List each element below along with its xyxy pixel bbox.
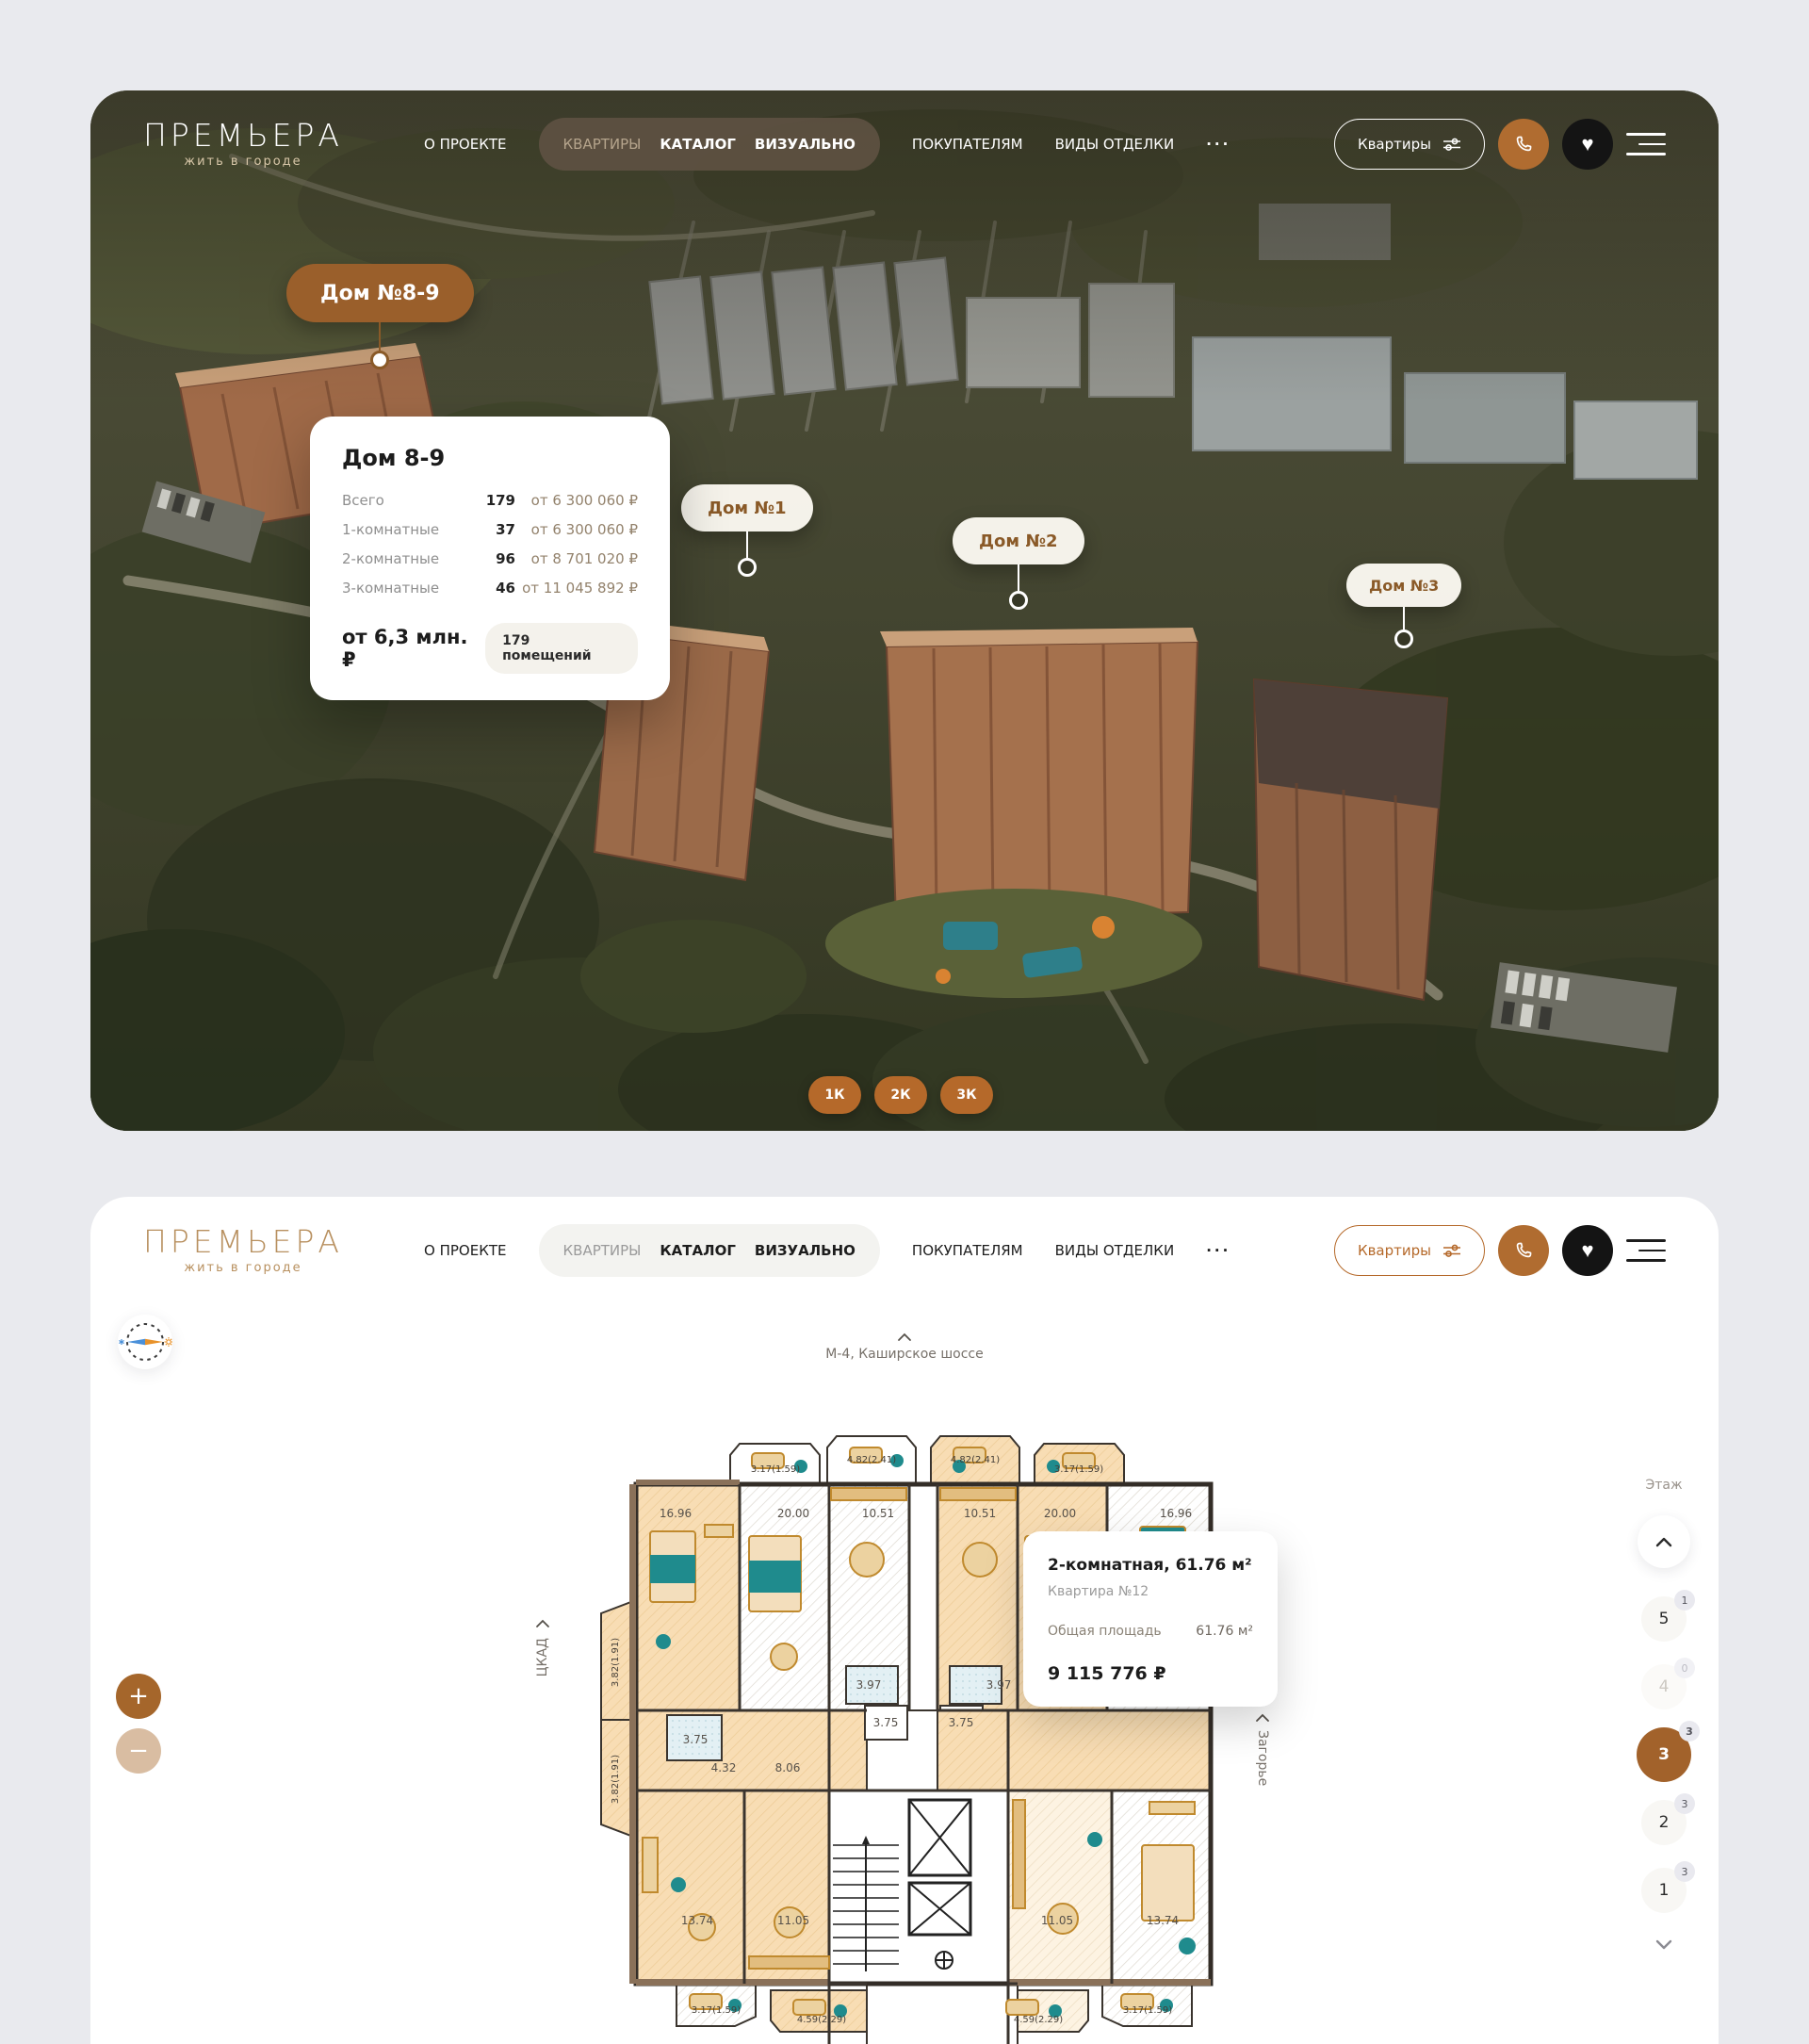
floor-up-button[interactable]: [1638, 1515, 1690, 1568]
favorites-button[interactable]: ♥: [1562, 1225, 1613, 1276]
sun-icon: [165, 1337, 173, 1347]
logo-title: ПРЕМЬЕРА: [143, 120, 343, 151]
marker-house-8-9: Дом №8-9: [286, 264, 474, 369]
flats-filter-button[interactable]: Квартиры: [1334, 119, 1485, 170]
marker-stem: [379, 322, 381, 351]
sliders-icon: [1442, 137, 1461, 152]
flat-price: 9 115 776 ₽: [1048, 1663, 1253, 1684]
flat-title: 2-комнатная, 61.76 м²: [1048, 1556, 1253, 1575]
svg-text:3.17(1.59): 3.17(1.59): [751, 1464, 800, 1475]
floor-item-5[interactable]: 5 1: [1641, 1596, 1687, 1642]
road-label-right: Загорье: [1255, 1713, 1270, 1786]
svg-text:3.97: 3.97: [986, 1678, 1012, 1692]
flat-number: Квартира №12: [1048, 1584, 1253, 1599]
phone-button[interactable]: [1498, 1225, 1549, 1276]
marker-house-2-pill[interactable]: Дом №2: [953, 517, 1084, 564]
house-popup-rows: Всего 179 от 6 300 060 ₽ 1-комнатные 37 …: [342, 492, 638, 597]
marker-dot: [370, 351, 389, 369]
flat-popup[interactable]: 2-комнатная, 61.76 м² Квартира №12 Общая…: [1023, 1531, 1278, 1707]
floor-item-4[interactable]: 4 0: [1641, 1664, 1687, 1709]
svg-text:3.17(1.59): 3.17(1.59): [1054, 1464, 1103, 1475]
nav-finishes[interactable]: ВИДЫ ОТДЕЛКИ: [1055, 1242, 1175, 1259]
house-popup-row: 2-комнатные 96 от 8 701 020 ₽: [342, 550, 638, 567]
svg-text:20.00: 20.00: [777, 1507, 809, 1520]
house-popup: Дом 8-9 Всего 179 от 6 300 060 ₽ 1-комна…: [310, 417, 670, 700]
nav-flats[interactable]: КВАРТИРЫ: [563, 136, 642, 153]
marker-dot: [1394, 630, 1413, 648]
flats-filter-button[interactable]: Квартиры: [1334, 1225, 1485, 1276]
plus-icon: +: [128, 1682, 149, 1710]
svg-text:4.59(2.29): 4.59(2.29): [797, 2015, 846, 2025]
house-popup-row: 3-комнатные 46 от 11 045 892 ₽: [342, 580, 638, 597]
svg-text:3.75: 3.75: [683, 1733, 709, 1746]
road-name: М-4, Каширское шоссе: [825, 1347, 983, 1362]
svg-text:3.82(1.91): 3.82(1.91): [611, 1638, 621, 1687]
chevron-up-icon[interactable]: [535, 1619, 550, 1628]
svg-text:3.17(1.59): 3.17(1.59): [1123, 2005, 1172, 2016]
marker-dot: [738, 558, 757, 577]
heart-icon: ♥: [1581, 134, 1593, 155]
room-filters: 1К 2К 3К: [808, 1076, 993, 1114]
logo-subtitle: жить в городе: [184, 155, 301, 169]
site-header: ПРЕМЬЕРА жить в городе О ПРОЕКТЕ КВАРТИР…: [90, 1210, 1719, 1291]
house-popup-row: Всего 179 от 6 300 060 ₽: [342, 492, 638, 509]
compass-icon: [118, 1315, 172, 1369]
floor-count-badge: 1: [1674, 1590, 1695, 1611]
road-label-top: М-4, Каширское шоссе: [90, 1333, 1719, 1362]
menu-button[interactable]: [1626, 133, 1666, 155]
masterplan-section: ПРЕМЬЕРА жить в городе О ПРОЕКТЕ КВАРТИР…: [90, 90, 1719, 1131]
marker-stem: [1403, 607, 1405, 630]
phone-icon: [1513, 134, 1534, 155]
nav-visual[interactable]: ВИЗУАЛЬНО: [755, 1242, 856, 1259]
svg-text:11.05: 11.05: [777, 1914, 809, 1927]
nav-flats[interactable]: КВАРТИРЫ: [563, 1242, 642, 1259]
road-name: Загорье: [1255, 1730, 1270, 1786]
marker-house-8-9-pill[interactable]: Дом №8-9: [286, 264, 474, 322]
floor-selector-label: Этаж: [1645, 1478, 1682, 1493]
sliders-icon: [1442, 1243, 1461, 1258]
nav-more[interactable]: ···: [1206, 1242, 1230, 1259]
floorplan-canvas[interactable]: 3.17(1.59) 4.82(2.41) 4.82(2.41) 3.17(1.…: [584, 1395, 1263, 2044]
filter-3k[interactable]: 3К: [940, 1076, 993, 1114]
nav-visual[interactable]: ВИЗУАЛЬНО: [755, 136, 856, 153]
chevron-up-icon[interactable]: [1255, 1713, 1270, 1723]
marker-dot: [1009, 591, 1028, 610]
nav-about[interactable]: О ПРОЕКТЕ: [424, 1242, 506, 1259]
floor-item-2[interactable]: 2 3: [1641, 1800, 1687, 1845]
svg-text:4.82(2.41): 4.82(2.41): [847, 1455, 896, 1465]
heart-icon: ♥: [1581, 1240, 1593, 1261]
logo-subtitle: жить в городе: [184, 1261, 301, 1275]
road-name: ЦКАД: [535, 1638, 550, 1676]
zoom-out-button[interactable]: −: [116, 1728, 161, 1774]
from-price: от 6,3 млн. ₽: [342, 626, 485, 671]
house-popup-title: Дом 8-9: [342, 445, 638, 471]
sun-compass: [118, 1315, 172, 1369]
chevron-up-icon: [1655, 1537, 1672, 1547]
filter-2k[interactable]: 2К: [874, 1076, 927, 1114]
marker-stem: [746, 531, 748, 558]
marker-house-3-pill[interactable]: Дом №3: [1346, 564, 1461, 607]
floor-count-badge: 3: [1679, 1721, 1700, 1741]
logo-title: ПРЕМЬЕРА: [143, 1226, 343, 1257]
nav-about[interactable]: О ПРОЕКТЕ: [424, 136, 506, 153]
nav-flats-group: КВАРТИРЫ КАТАЛОГ ВИЗУАЛЬНО: [539, 118, 880, 171]
menu-button[interactable]: [1626, 1239, 1666, 1262]
marker-house-1-pill[interactable]: Дом №1: [681, 484, 813, 531]
marker-stem: [1018, 564, 1019, 591]
floor-count-badge: 3: [1674, 1861, 1695, 1882]
header-actions: Квартиры ♥: [1334, 1225, 1666, 1276]
svg-text:11.05: 11.05: [1041, 1914, 1073, 1927]
floor-count-badge: 3: [1674, 1793, 1695, 1814]
marker-house-1: Дом №1: [681, 484, 813, 577]
phone-icon: [1513, 1240, 1534, 1261]
svg-text:4.82(2.41): 4.82(2.41): [951, 1455, 1000, 1465]
site-header: ПРЕМЬЕРА жить в городе О ПРОЕКТЕ КВАРТИР…: [90, 104, 1719, 185]
minus-icon: −: [128, 1737, 149, 1765]
filter-1k[interactable]: 1К: [808, 1076, 861, 1114]
nav-buyers[interactable]: ПОКУПАТЕЛЯМ: [912, 1242, 1023, 1259]
house-popup-row: 1-комнатные 37 от 6 300 060 ₽: [342, 521, 638, 538]
nav-catalog[interactable]: КАТАЛОГ: [660, 1242, 735, 1259]
svg-text:16.96: 16.96: [1160, 1507, 1192, 1520]
header-actions: Квартиры ♥: [1334, 119, 1666, 170]
svg-text:4.59(2.29): 4.59(2.29): [1014, 2015, 1063, 2025]
main-nav: О ПРОЕКТЕ КВАРТИРЫ КАТАЛОГ ВИЗУАЛЬНО ПОК…: [424, 1224, 1230, 1277]
nav-finishes[interactable]: ВИДЫ ОТДЕЛКИ: [1055, 136, 1175, 153]
phone-button[interactable]: [1498, 119, 1549, 170]
nav-more[interactable]: ···: [1206, 136, 1230, 153]
house-popup-footer: от 6,3 млн. ₽ 179 помещений: [342, 623, 638, 674]
svg-text:3.82(1.91): 3.82(1.91): [611, 1755, 621, 1804]
nav-buyers[interactable]: ПОКУПАТЕЛЯМ: [912, 136, 1023, 153]
chevron-up-icon[interactable]: [897, 1333, 912, 1342]
svg-text:13.74: 13.74: [1147, 1914, 1179, 1927]
svg-text:10.51: 10.51: [862, 1507, 894, 1520]
svg-text:3.97: 3.97: [856, 1678, 882, 1692]
zoom-controls: + −: [116, 1674, 161, 1774]
marker-house-2: Дом №2: [953, 517, 1084, 610]
zoom-in-button[interactable]: +: [116, 1674, 161, 1719]
svg-text:3.17(1.59): 3.17(1.59): [692, 2005, 741, 2016]
units-badge: 179 помещений: [485, 623, 638, 674]
svg-text:4.32: 4.32: [711, 1761, 737, 1774]
logo[interactable]: ПРЕМЬЕРА жить в городе: [143, 120, 343, 169]
chevron-down-icon: [1655, 1939, 1672, 1950]
svg-text:16.96: 16.96: [660, 1507, 692, 1520]
floor-selector: Этаж 5 1 4 0 3 3 2 3 1 3: [1628, 1478, 1700, 1954]
main-nav: О ПРОЕКТЕ КВАРТИРЫ КАТАЛОГ ВИЗУАЛЬНО ПОК…: [424, 118, 1230, 171]
road-label-left: ЦКАД: [535, 1619, 550, 1676]
menu-icon: [1626, 1239, 1666, 1242]
floor-count-badge: 0: [1674, 1658, 1695, 1678]
floor-item-1[interactable]: 1 3: [1641, 1868, 1687, 1913]
floor-down-button[interactable]: [1650, 1938, 1678, 1954]
svg-text:8.06: 8.06: [775, 1761, 801, 1774]
svg-text:10.51: 10.51: [964, 1507, 996, 1520]
nav-flats-group: КВАРТИРЫ КАТАЛОГ ВИЗУАЛЬНО: [539, 1224, 880, 1277]
logo[interactable]: ПРЕМЬЕРА жить в городе: [143, 1226, 343, 1275]
floorplan-section: ПРЕМЬЕРА жить в городе О ПРОЕКТЕ КВАРТИР…: [90, 1197, 1719, 2044]
marker-house-3: Дом №3: [1346, 564, 1461, 648]
favorites-button[interactable]: ♥: [1562, 119, 1613, 170]
svg-text:3.75: 3.75: [949, 1716, 974, 1729]
svg-text:13.74: 13.74: [681, 1914, 713, 1927]
menu-icon: [1626, 133, 1666, 136]
snowflake-icon: [119, 1339, 123, 1345]
svg-text:3.75: 3.75: [873, 1716, 899, 1729]
flat-area-row: Общая площадь 61.76 м²: [1048, 1624, 1253, 1639]
nav-catalog[interactable]: КАТАЛОГ: [660, 136, 735, 153]
svg-text:20.00: 20.00: [1044, 1507, 1076, 1520]
floor-item-3[interactable]: 3 3: [1637, 1727, 1691, 1782]
